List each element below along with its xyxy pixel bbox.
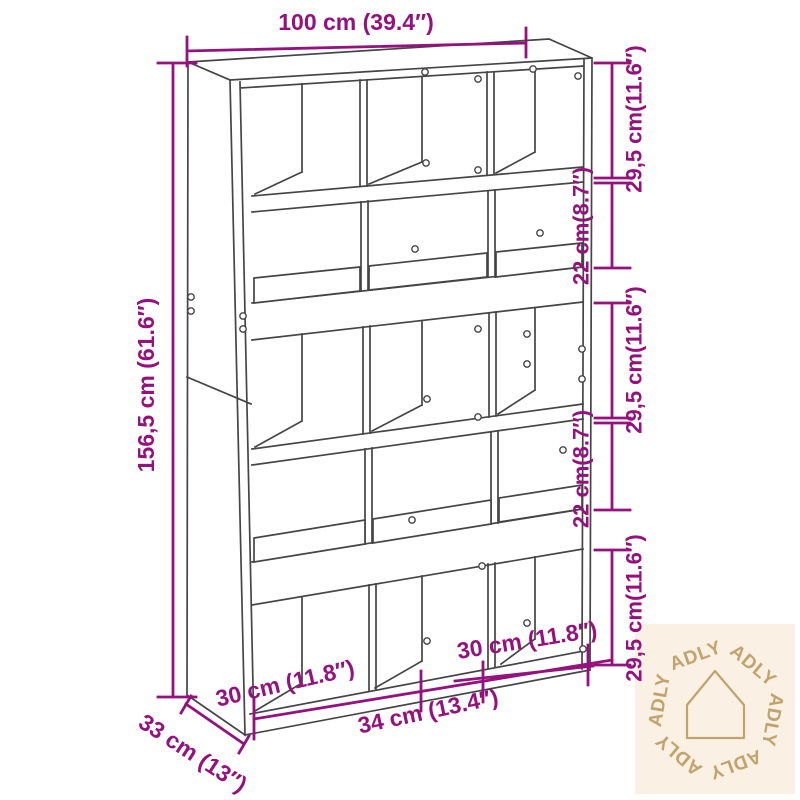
- screw-hole: [412, 246, 418, 252]
- screw-hole: [579, 346, 585, 352]
- bookcase-dimension-drawing: ADLY ADLY ADLY ADLY ADLY ADLY: [0, 0, 800, 800]
- watermark: ADLY ADLY ADLY ADLY ADLY ADLY: [635, 624, 795, 794]
- label-right-segment-3: 29,5 cm(11.6″): [622, 286, 647, 434]
- screw-hole: [537, 230, 543, 236]
- screw-hole: [560, 447, 566, 453]
- label-right-segment-5: 29,5 cm(11.6″): [622, 534, 647, 682]
- screw-hole: [240, 313, 246, 319]
- screw-hole: [479, 563, 485, 569]
- screw-hole: [575, 73, 581, 79]
- label-top-width: 100 cm (39.4″): [278, 9, 434, 35]
- screw-hole: [524, 620, 530, 626]
- screw-hole: [240, 326, 246, 332]
- screw-hole: [579, 376, 585, 382]
- product-dimension-diagram: ADLY ADLY ADLY ADLY ADLY ADLY: [0, 0, 800, 800]
- screw-hole: [423, 160, 429, 166]
- screw-hole: [475, 414, 481, 420]
- screw-hole: [424, 396, 430, 402]
- label-right-segment-1: 29,5 cm(11.6″): [622, 45, 647, 193]
- screw-hole: [422, 69, 428, 75]
- screw-hole: [475, 76, 481, 82]
- screw-hole: [475, 326, 481, 332]
- screw-hole: [530, 66, 536, 72]
- screw-hole: [475, 167, 481, 173]
- screw-hole: [188, 308, 194, 314]
- screw-hole: [188, 294, 194, 300]
- label-right-segment-2: 22 cm(8.7″): [569, 167, 594, 285]
- screw-hole: [524, 331, 530, 337]
- screw-hole: [580, 646, 586, 652]
- screw-hole: [409, 517, 415, 523]
- screw-hole: [424, 638, 430, 644]
- label-total-height: 156,5 cm (61.6″): [133, 298, 159, 473]
- label-right-segment-4: 22 cm(8.7″): [569, 410, 594, 528]
- screw-hole: [524, 361, 530, 367]
